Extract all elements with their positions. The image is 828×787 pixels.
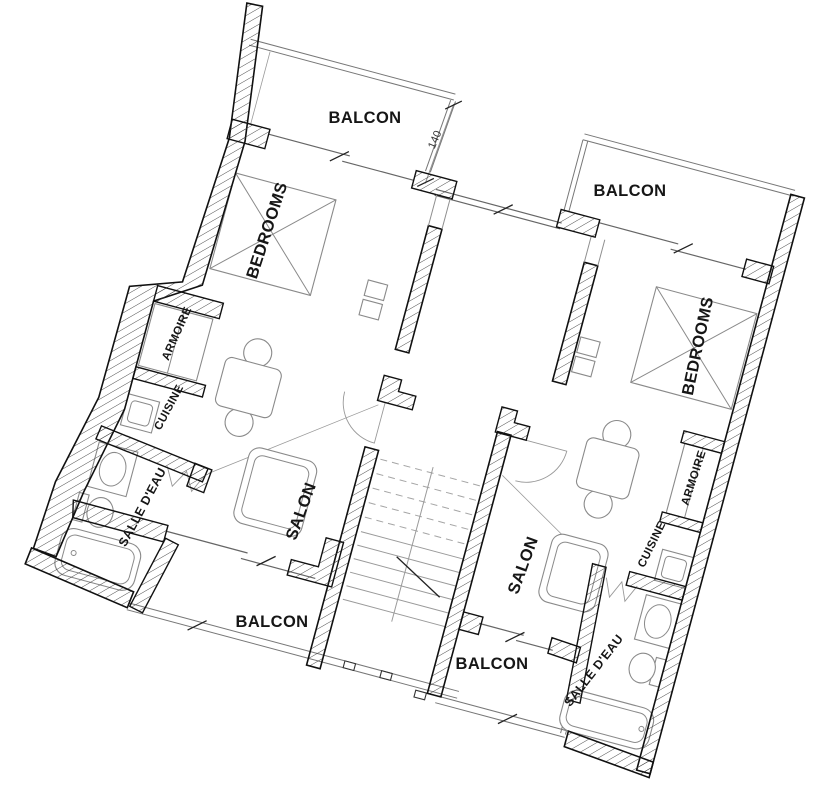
wall-salon-pier-right-a	[459, 612, 483, 635]
wall-edge-line	[584, 236, 605, 266]
parapet-balcony-top-right	[564, 134, 795, 267]
nightstand-left	[359, 299, 382, 320]
room-label-balcon-top-left: BALCON	[329, 109, 402, 127]
stair-stringer	[392, 467, 433, 622]
wall-window-pier-left-b	[412, 171, 457, 199]
nightstand-left	[364, 280, 387, 301]
parapet-balcony-bottom-right	[435, 671, 573, 738]
wall-salon-pier-right-b	[547, 638, 581, 663]
wall-party-left-upper	[395, 226, 442, 353]
wall-window-pier-right-a	[556, 209, 599, 237]
room-label-balcon-bottom-right: BALCON	[456, 655, 529, 673]
dining-table-left	[207, 332, 289, 444]
nightstand-right	[577, 337, 600, 358]
porch-post	[343, 661, 355, 671]
nightstand-right	[572, 356, 595, 377]
floor-plan-page: BALCON BALCON BEDROOMS BEDROOMS ARMOIRE …	[0, 0, 828, 787]
room-label-balcon-bottom-left: BALCON	[236, 613, 309, 631]
porch-post	[414, 690, 426, 700]
room-label-balcon-top-right: BALCON	[594, 182, 667, 200]
wall-edge-line	[428, 195, 450, 230]
room-label-salon-right: SALON	[505, 534, 542, 596]
wall-stair-west	[307, 447, 379, 669]
wall-east	[637, 194, 805, 773]
porch-post	[380, 671, 392, 681]
floor-plan-drawing: BALCON BALCON BEDROOMS BEDROOMS ARMOIRE …	[0, 0, 828, 787]
entry-door-right	[515, 440, 566, 491]
wall-jamb-left	[377, 375, 419, 409]
dining-table-right	[568, 414, 646, 525]
window-bedroom-left	[267, 134, 416, 180]
dimension-text-140: 140	[426, 129, 444, 151]
window-bedroom-right	[597, 223, 748, 270]
stair-break-line	[389, 557, 446, 598]
